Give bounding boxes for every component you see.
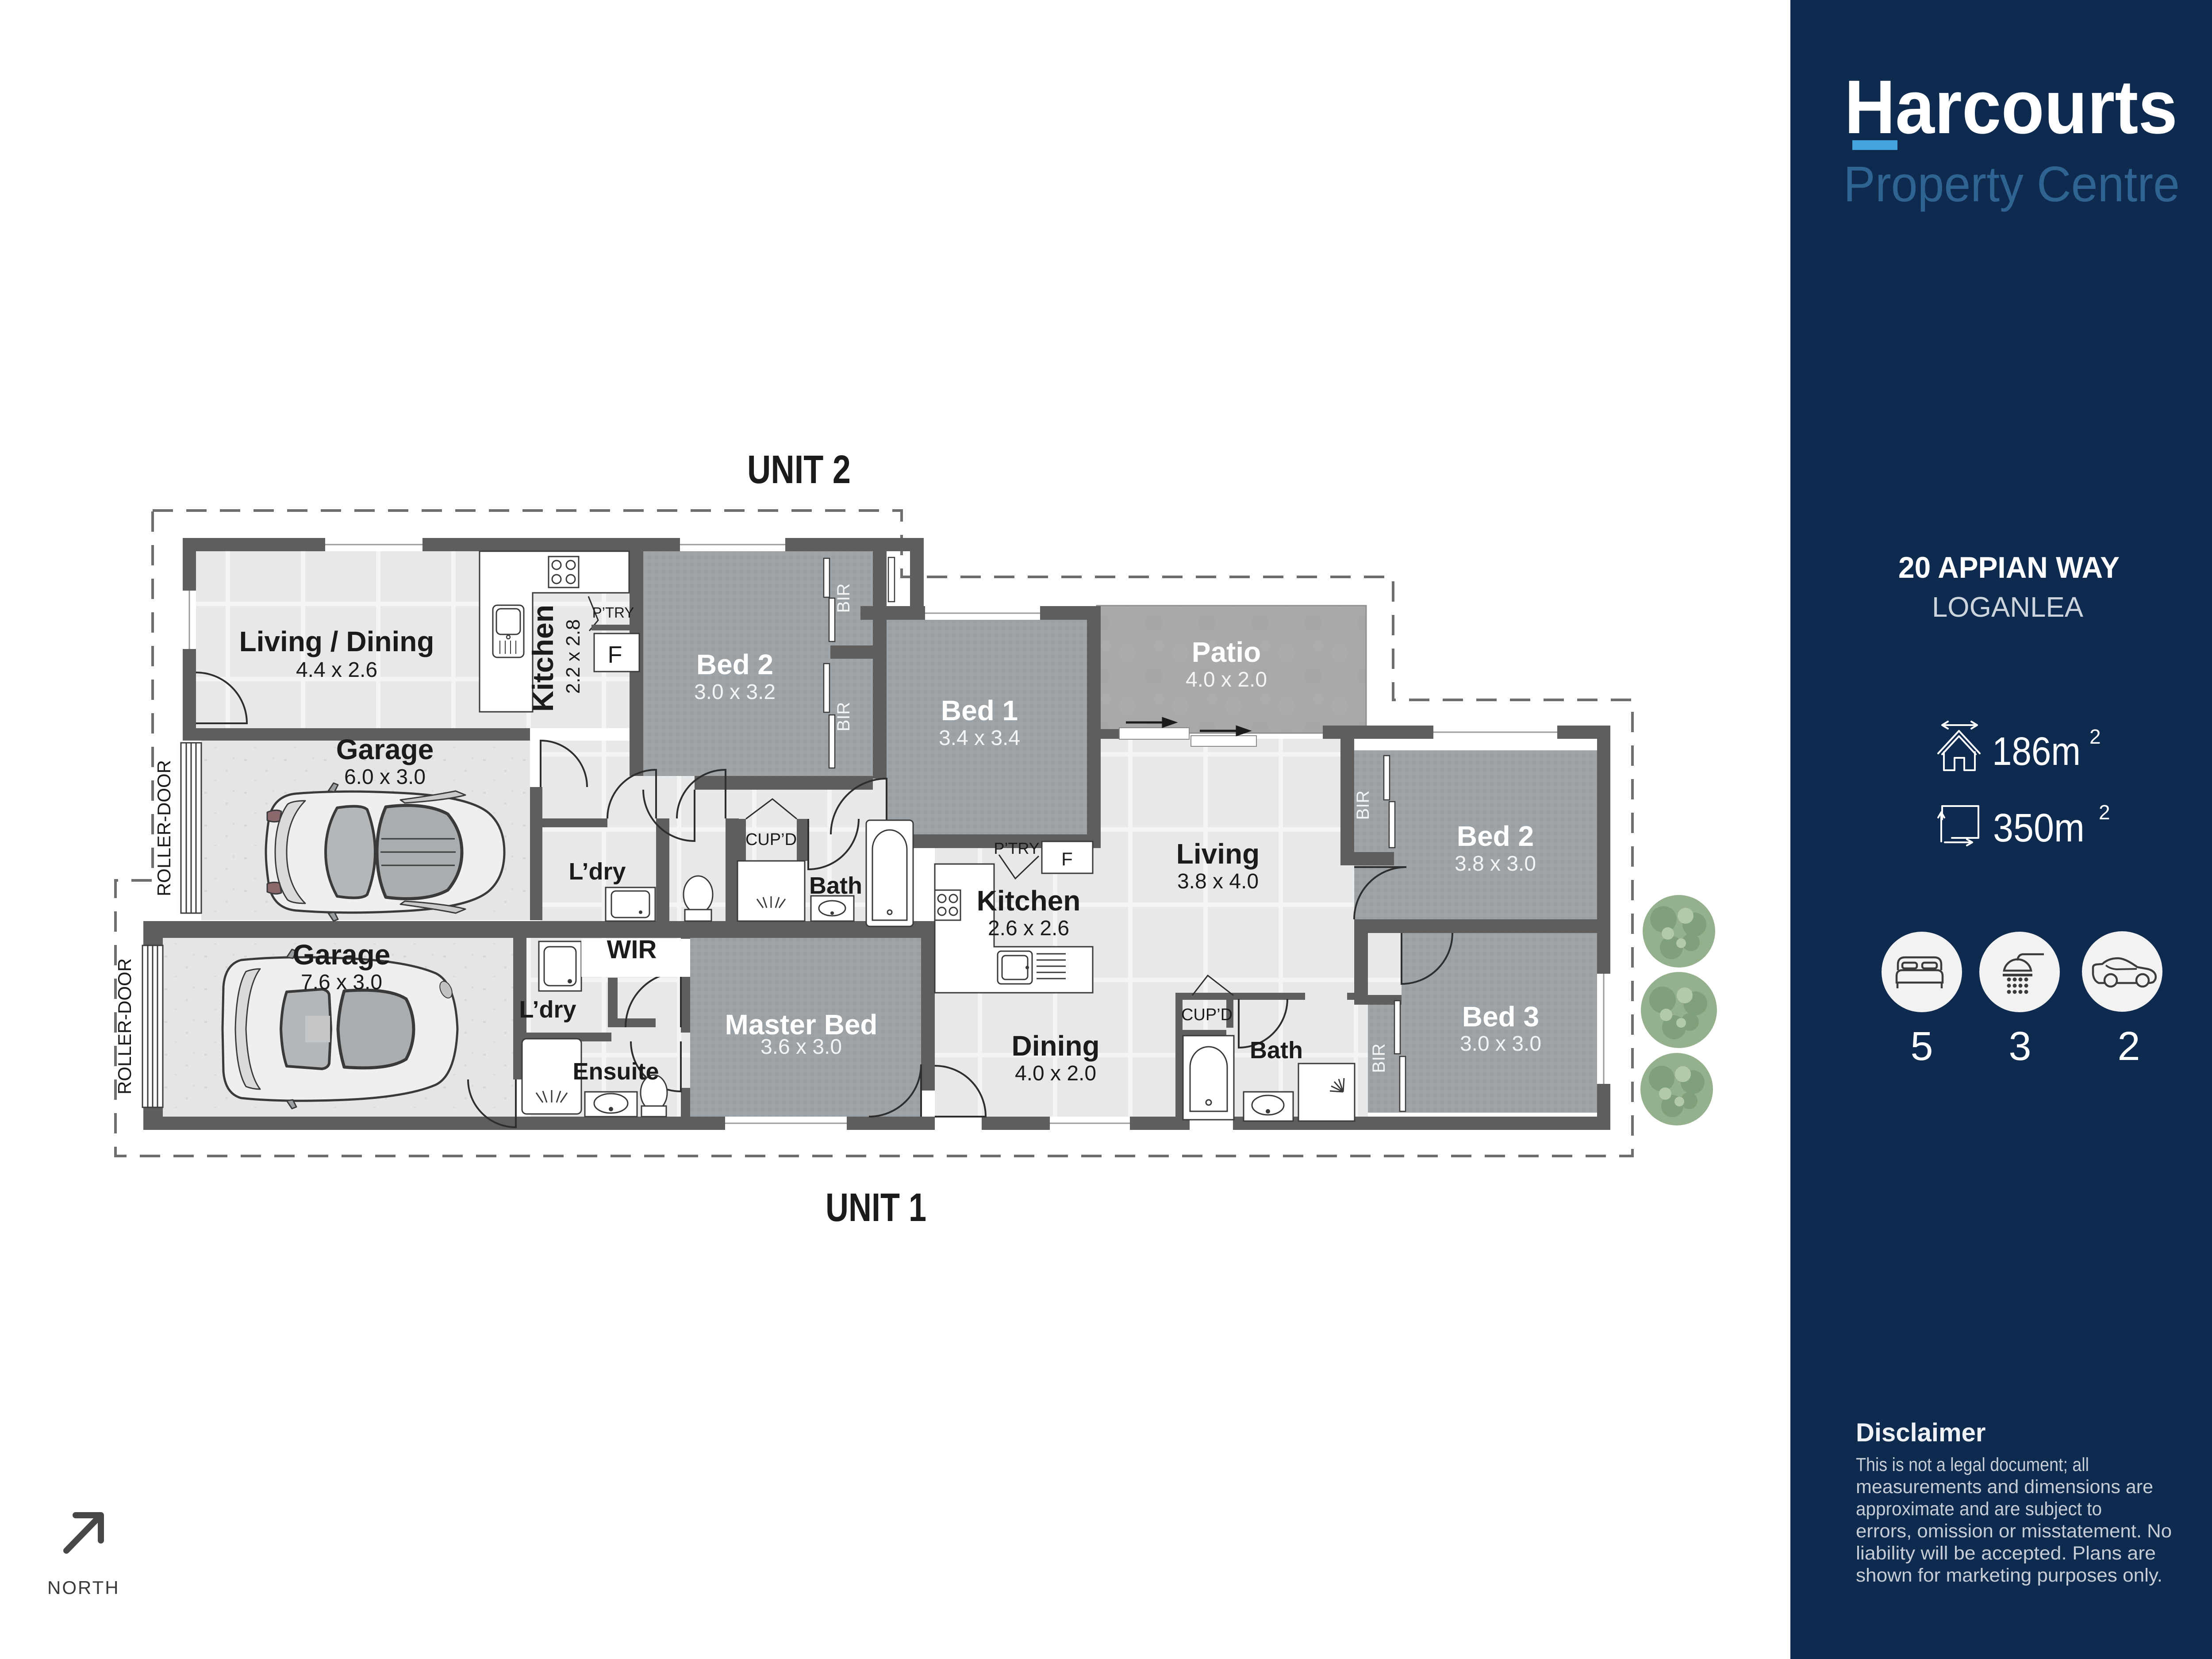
svg-text:2.2 x 2.8: 2.2 x 2.8 bbox=[562, 619, 584, 694]
svg-text:5: 5 bbox=[1910, 1024, 1933, 1069]
svg-text:Property Centre: Property Centre bbox=[1843, 156, 2180, 212]
svg-text:Bed 3: Bed 3 bbox=[1462, 1001, 1539, 1033]
svg-text:3.0 x 3.0: 3.0 x 3.0 bbox=[1460, 1032, 1541, 1056]
svg-text:measurements and dimensions ar: measurements and dimensions are bbox=[1856, 1476, 2153, 1498]
svg-text:Garage: Garage bbox=[336, 733, 434, 765]
svg-text:Patio: Patio bbox=[1192, 636, 1261, 668]
svg-text:WIR: WIR bbox=[607, 935, 657, 964]
svg-text:6.0 x 3.0: 6.0 x 3.0 bbox=[344, 765, 426, 789]
svg-text:Harcourts: Harcourts bbox=[1844, 65, 2177, 150]
svg-text:3.0 x 3.2: 3.0 x 3.2 bbox=[694, 680, 776, 704]
svg-text:4.4 x 2.6: 4.4 x 2.6 bbox=[296, 658, 377, 682]
svg-text:liability will be accepted. Pl: liability will be accepted. Plans are bbox=[1856, 1543, 2156, 1564]
svg-text:BIR: BIR bbox=[1369, 1044, 1389, 1073]
svg-text:L’dry: L’dry bbox=[568, 858, 626, 885]
svg-text:3.8 x 4.0: 3.8 x 4.0 bbox=[1177, 870, 1259, 893]
svg-text:2: 2 bbox=[2089, 725, 2101, 748]
svg-text:L’dry: L’dry bbox=[519, 996, 576, 1023]
svg-text:CUP’D: CUP’D bbox=[1181, 1006, 1233, 1024]
svg-text:P’TRY: P’TRY bbox=[592, 604, 634, 621]
svg-text:2: 2 bbox=[2117, 1024, 2140, 1069]
svg-text:NORTH: NORTH bbox=[47, 1577, 120, 1598]
svg-text:Kitchen: Kitchen bbox=[526, 605, 559, 712]
svg-text:3.4 x 3.4: 3.4 x 3.4 bbox=[939, 726, 1020, 750]
svg-text:BIR: BIR bbox=[1353, 791, 1373, 820]
svg-text:Dining: Dining bbox=[1011, 1030, 1099, 1062]
svg-text:4.0 x 2.0: 4.0 x 2.0 bbox=[1015, 1062, 1096, 1085]
svg-text:186m: 186m bbox=[1992, 730, 2081, 774]
svg-text:CUP’D: CUP’D bbox=[745, 830, 797, 849]
svg-text:approximate and are subject to: approximate and are subject to bbox=[1856, 1498, 2102, 1520]
svg-text:4.0 x 2.0: 4.0 x 2.0 bbox=[1186, 668, 1267, 691]
svg-text:This is not a legal document;: This is not a legal document; all bbox=[1856, 1454, 2089, 1475]
svg-text:7.6 x 3.0: 7.6 x 3.0 bbox=[301, 971, 382, 994]
svg-text:2.6 x 2.6: 2.6 x 2.6 bbox=[988, 917, 1069, 940]
svg-text:Garage: Garage bbox=[293, 939, 391, 971]
svg-text:BIR: BIR bbox=[834, 702, 853, 732]
svg-text:Living: Living bbox=[1176, 838, 1260, 870]
svg-text:350m: 350m bbox=[1993, 806, 2085, 850]
svg-text:F: F bbox=[608, 641, 622, 668]
svg-text:Disclaimer: Disclaimer bbox=[1856, 1418, 1985, 1447]
svg-text:3.8 x 3.0: 3.8 x 3.0 bbox=[1455, 852, 1536, 876]
svg-text:Bed 2: Bed 2 bbox=[696, 649, 773, 680]
svg-text:Kitchen: Kitchen bbox=[977, 885, 1081, 917]
svg-text:F: F bbox=[1061, 849, 1073, 869]
svg-text:BIR: BIR bbox=[834, 584, 853, 613]
svg-text:Ensuite: Ensuite bbox=[572, 1058, 659, 1085]
svg-text:3.6 x 3.0: 3.6 x 3.0 bbox=[760, 1035, 842, 1059]
svg-text:Bed 1: Bed 1 bbox=[941, 695, 1018, 726]
svg-text:shown for marketing purposes o: shown for marketing purposes only. bbox=[1856, 1565, 2162, 1586]
svg-text:ROLLER-DOOR: ROLLER-DOOR bbox=[114, 958, 135, 1094]
svg-text:20 APPIAN WAY: 20 APPIAN WAY bbox=[1898, 551, 2120, 584]
svg-text:UNIT 2: UNIT 2 bbox=[747, 448, 851, 492]
svg-text:P’TRY: P’TRY bbox=[994, 839, 1039, 857]
svg-text:Living / Dining: Living / Dining bbox=[239, 626, 434, 657]
svg-text:UNIT 1: UNIT 1 bbox=[826, 1186, 926, 1230]
svg-text:Bath: Bath bbox=[1250, 1037, 1303, 1064]
svg-text:Bed 2: Bed 2 bbox=[1457, 820, 1534, 852]
svg-text:errors, omission or misstateme: errors, omission or misstatement. No bbox=[1856, 1521, 2172, 1542]
svg-text:ROLLER-DOOR: ROLLER-DOOR bbox=[154, 760, 174, 896]
svg-text:3: 3 bbox=[2008, 1024, 2031, 1069]
svg-text:LOGANLEA: LOGANLEA bbox=[1932, 591, 2083, 623]
svg-text:2: 2 bbox=[2099, 801, 2110, 824]
svg-text:Bath: Bath bbox=[809, 872, 862, 899]
